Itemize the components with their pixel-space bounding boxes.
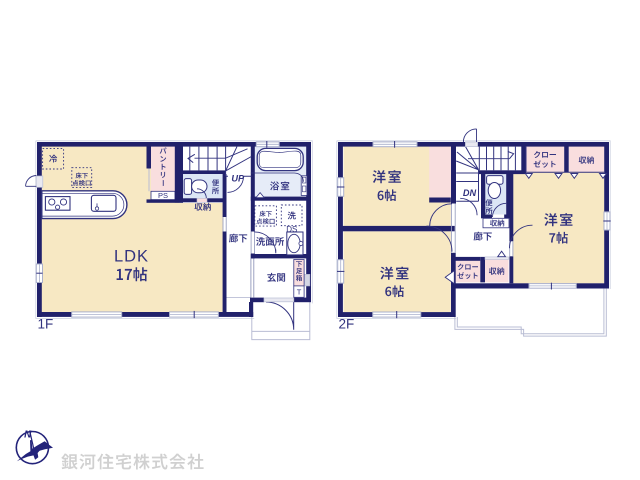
svg-text:2F: 2F	[339, 317, 355, 332]
svg-text:1F: 1F	[38, 317, 54, 332]
svg-text:DS: DS	[286, 225, 297, 234]
svg-text:PS: PS	[158, 191, 168, 200]
svg-text:T: T	[297, 288, 302, 297]
svg-text:LDK: LDK	[114, 248, 149, 266]
svg-text:DN: DN	[463, 188, 477, 198]
svg-text:UP: UP	[231, 174, 245, 184]
svg-text:N: N	[24, 430, 32, 441]
